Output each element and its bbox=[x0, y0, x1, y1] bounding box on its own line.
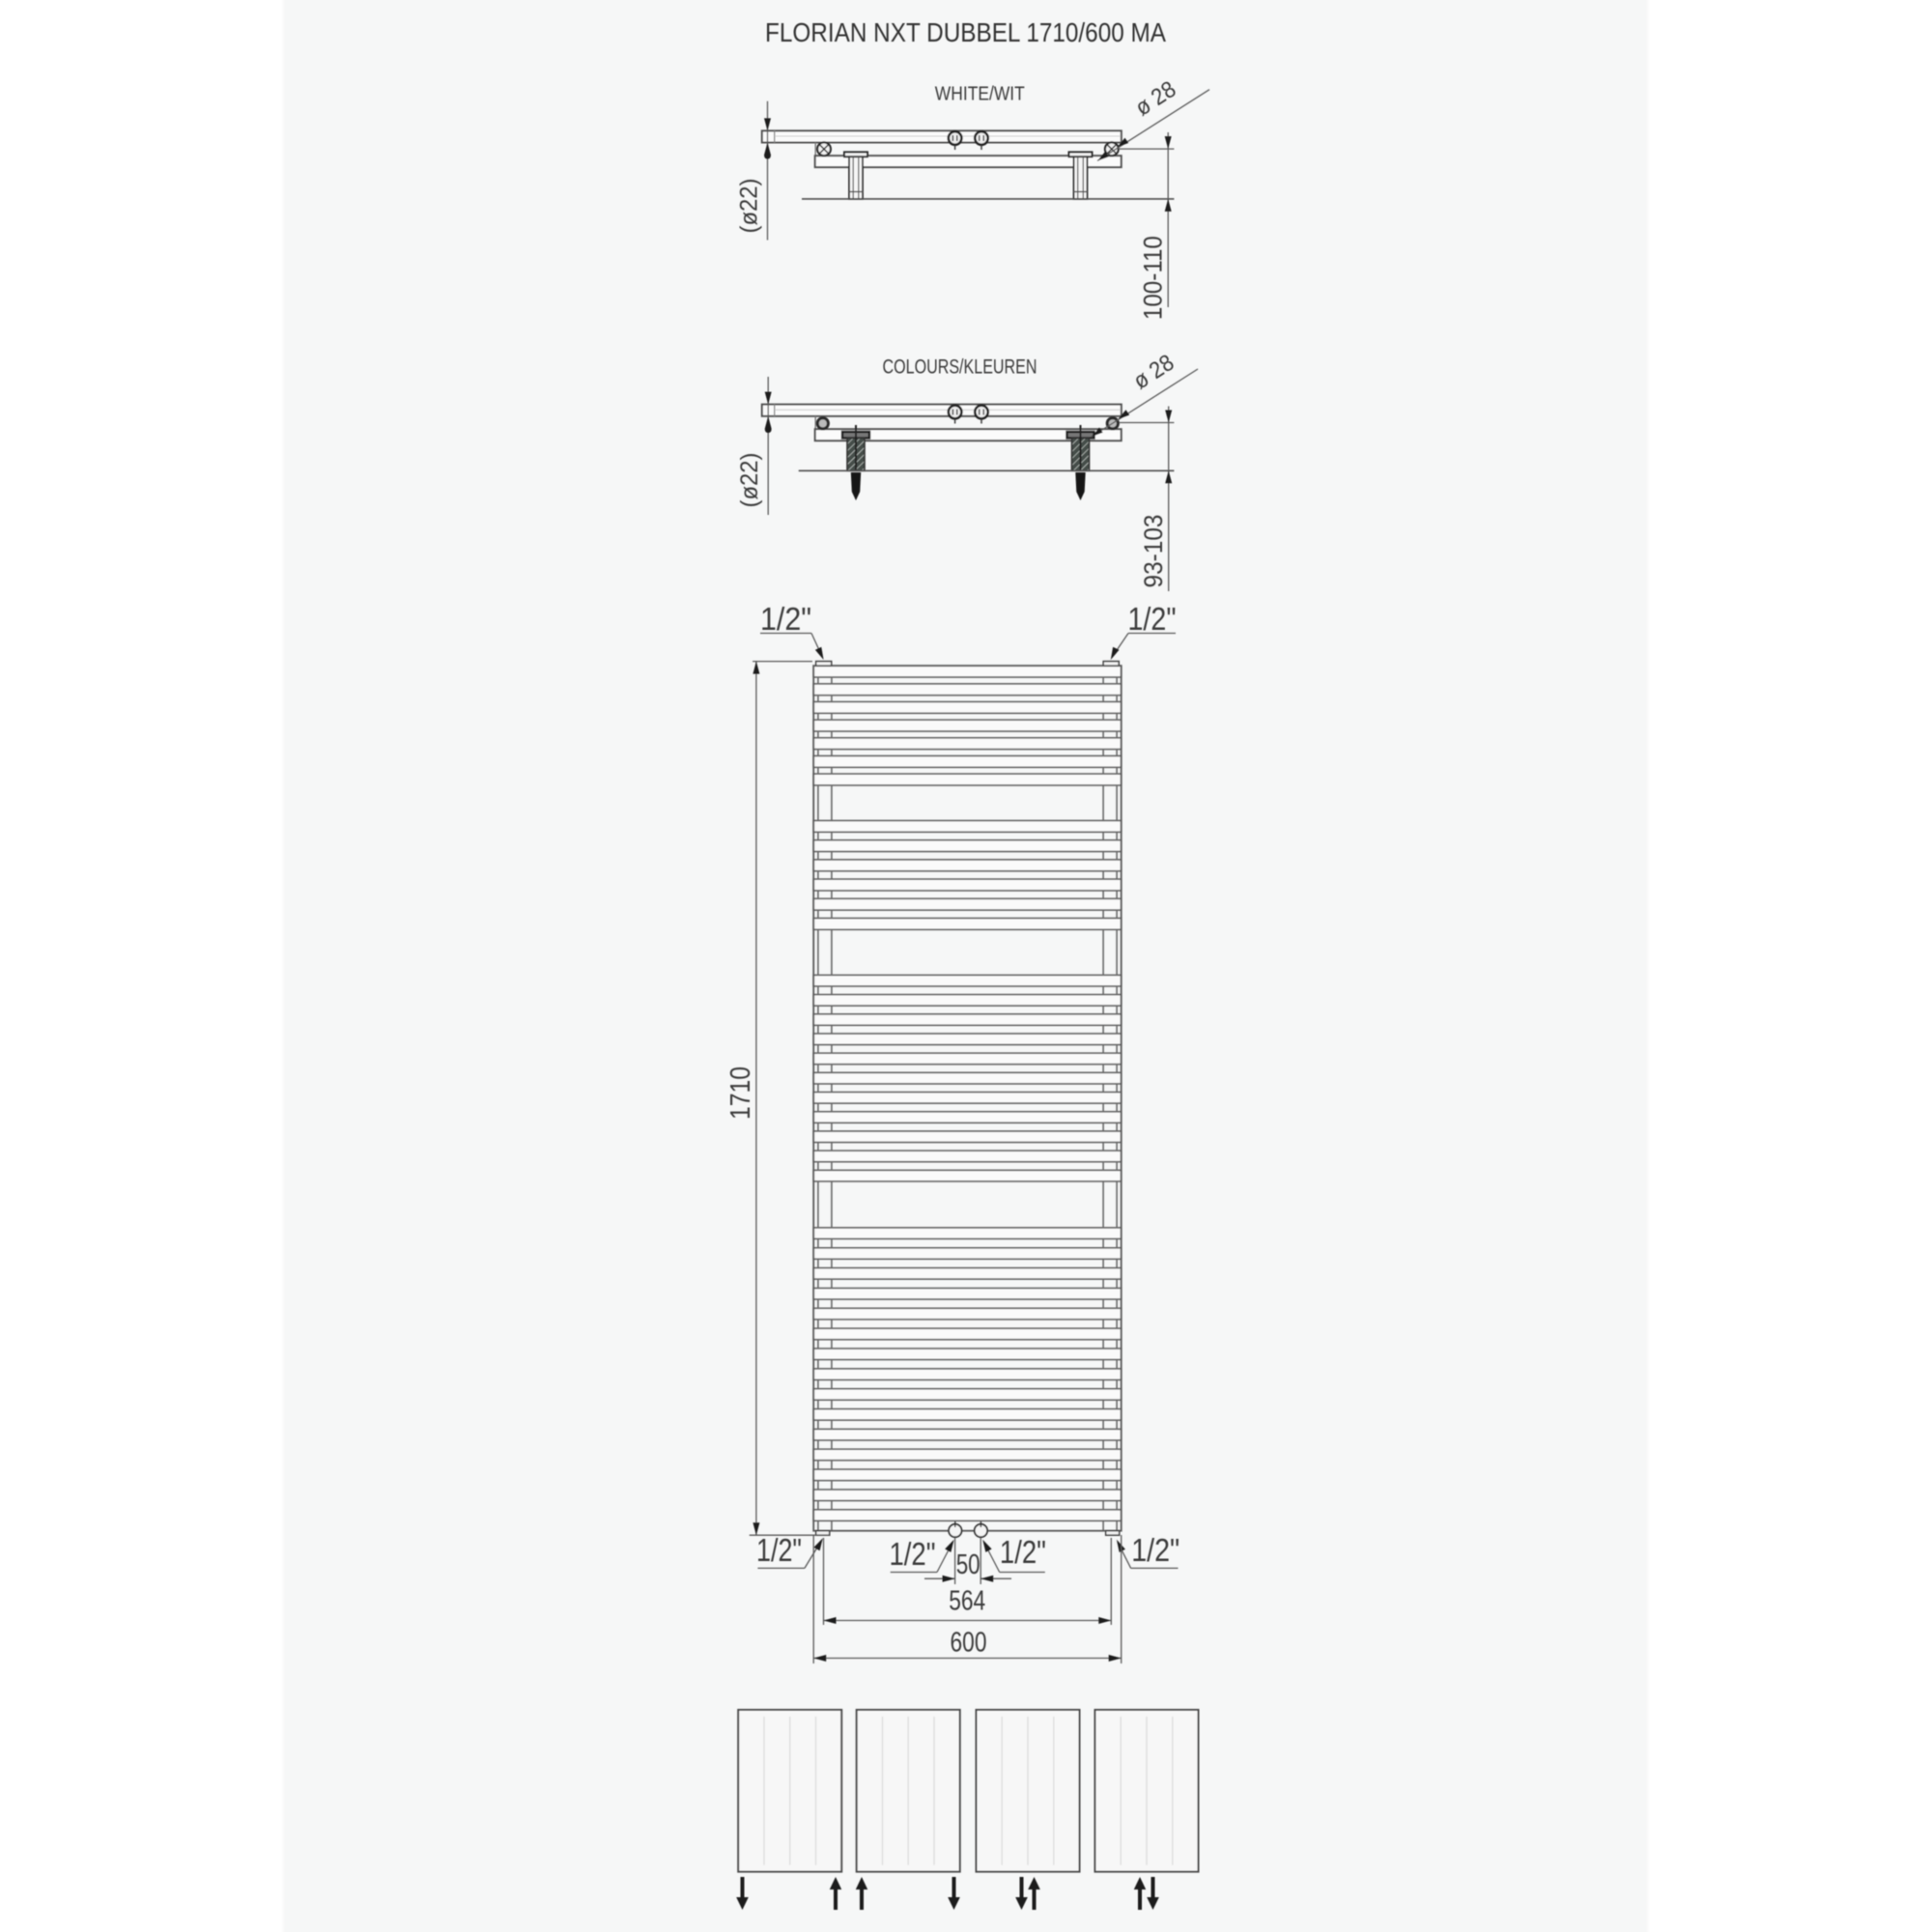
svg-text:1/2": 1/2" bbox=[760, 601, 811, 637]
svg-text:1/2": 1/2" bbox=[1000, 1534, 1046, 1570]
svg-text:COLOURS/KLEUREN: COLOURS/KLEUREN bbox=[883, 356, 1037, 379]
svg-text:93-103: 93-103 bbox=[1139, 515, 1168, 588]
svg-text:1/2": 1/2" bbox=[890, 1536, 936, 1572]
svg-text:FLORIAN NXT DUBBEL 1710/600 MA: FLORIAN NXT DUBBEL 1710/600 MA bbox=[765, 17, 1166, 47]
svg-text:564: 564 bbox=[949, 1586, 985, 1617]
svg-text:600: 600 bbox=[951, 1628, 987, 1659]
svg-text:50: 50 bbox=[956, 1549, 980, 1580]
svg-text:1/2": 1/2" bbox=[1128, 601, 1177, 637]
svg-text:1/2": 1/2" bbox=[1131, 1532, 1179, 1568]
svg-text:WHITE/WIT: WHITE/WIT bbox=[935, 84, 1025, 105]
svg-text:(ø22): (ø22) bbox=[736, 453, 763, 508]
svg-text:100-110: 100-110 bbox=[1139, 236, 1168, 320]
svg-text:(ø22): (ø22) bbox=[736, 179, 763, 234]
svg-text:1/2": 1/2" bbox=[756, 1532, 802, 1568]
svg-text:1710: 1710 bbox=[725, 1066, 756, 1120]
